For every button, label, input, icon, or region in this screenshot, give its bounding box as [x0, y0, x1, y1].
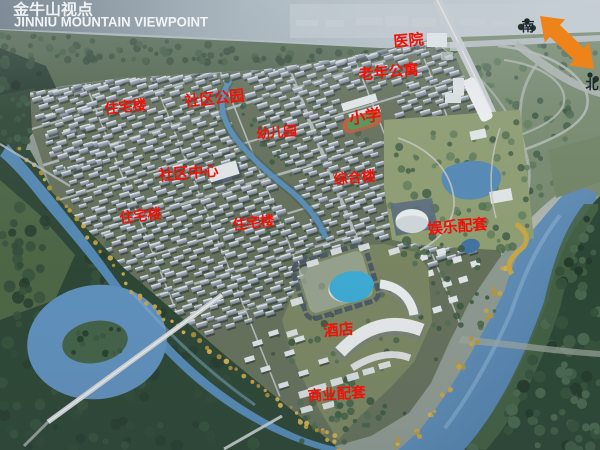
svg-text:医院: 医院: [393, 30, 424, 51]
svg-text:北: 北: [585, 77, 598, 92]
svg-text:酒店: 酒店: [323, 320, 354, 341]
svg-text:JINNIU MOUNTAIN VIEWPOINT: JINNIU MOUNTAIN VIEWPOINT: [14, 14, 208, 30]
svg-text:南: 南: [521, 19, 534, 34]
